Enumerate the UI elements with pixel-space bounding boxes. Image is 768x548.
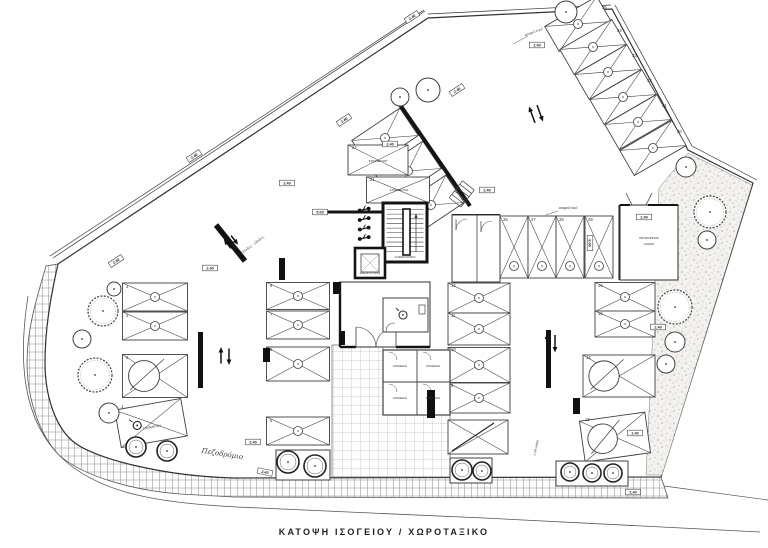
plain-tree xyxy=(99,403,119,423)
entrance-lobby xyxy=(340,282,430,347)
grate-tree xyxy=(277,451,299,473)
parking-stall xyxy=(448,313,510,345)
grate-tree xyxy=(604,464,622,482)
svg-text:2.40: 2.40 xyxy=(249,441,256,445)
parking-stall xyxy=(267,347,330,381)
svg-text:5.00: 5.00 xyxy=(316,211,323,215)
dimension-tag: 2.40 xyxy=(530,42,545,48)
svg-text:2.40: 2.40 xyxy=(631,432,638,436)
svg-text:2.40: 2.40 xyxy=(654,326,661,330)
parking-stall xyxy=(448,283,510,313)
stall-number: 15 xyxy=(598,311,603,316)
svg-text:2.40: 2.40 xyxy=(283,182,290,186)
svg-text:2.40: 2.40 xyxy=(640,216,647,220)
plan-label: ΑΠΟΘΗΚΗ xyxy=(393,364,407,368)
stall-number: 33 xyxy=(632,53,637,58)
dimension-tag: 2.40 xyxy=(246,439,261,445)
dimension-tag: 2.40 xyxy=(628,430,643,436)
service-rooms xyxy=(452,215,500,282)
stall-number: 31 xyxy=(662,103,667,108)
parking-stall xyxy=(595,311,655,337)
plain-tree xyxy=(657,355,675,373)
plan-label: ΣΤΑΘΜΕΥΣΗ xyxy=(390,188,408,192)
bushy-tree xyxy=(658,290,692,324)
floor-plan-drawing: 3534333231302324252221262728294321876512… xyxy=(0,0,768,548)
bushy-tree xyxy=(78,358,112,392)
dimension-tag: 2.40 xyxy=(404,11,420,24)
plain-tree xyxy=(107,282,121,296)
plan-label: ΣΤΑΘΜΕΥΣΗ xyxy=(369,159,388,163)
stall-number: 22 xyxy=(352,145,357,150)
svg-text:2.40: 2.40 xyxy=(533,44,540,48)
svg-text:2.40: 2.40 xyxy=(629,491,636,495)
dimension-tag: 2.40 xyxy=(651,324,666,330)
stall-number: 27 xyxy=(531,217,536,222)
svg-text:6.00: 6.00 xyxy=(588,239,592,246)
storage-rooms xyxy=(383,350,450,415)
parking-stall xyxy=(267,283,330,310)
parking-stall xyxy=(267,311,330,339)
dimension-tag: 6.00 xyxy=(587,236,593,251)
stall-number: 13 xyxy=(585,417,590,422)
stall-number: 10 xyxy=(451,347,456,352)
dimension-tag: 2.40 xyxy=(480,187,495,193)
dimension-tag: 2.40 xyxy=(626,489,641,495)
parking-stall xyxy=(583,355,655,397)
plan-label: ΠΡΟΣΩΡΙΝΟΣ xyxy=(639,236,659,240)
plain-tree xyxy=(676,157,696,177)
parking-stall xyxy=(448,348,510,383)
grate-tree xyxy=(561,463,579,481)
svg-text:2.40: 2.40 xyxy=(483,189,490,193)
stall-number: 16 xyxy=(598,283,603,288)
parking-stall xyxy=(500,216,528,278)
plan-label: ΑΝΕΛΚΥΣΤΗΡΑΣ xyxy=(360,271,381,275)
stall-number: 11 xyxy=(451,313,456,318)
plan-label: ΑΠΟΘΗΚΗ xyxy=(426,364,440,368)
parking-stall xyxy=(448,383,510,413)
grate-tree xyxy=(452,460,472,480)
parking-stall xyxy=(123,355,188,398)
stall-number: 35 xyxy=(602,5,607,10)
stair-newel xyxy=(403,209,410,255)
dimension-tag: 5.00 xyxy=(313,209,328,215)
parking-stall xyxy=(448,420,508,454)
dimension-tag: 2.40 xyxy=(637,214,652,220)
grate-tree xyxy=(583,464,601,482)
parking-stall xyxy=(267,417,330,445)
plan-label: ασφαλτικό xyxy=(559,206,578,210)
svg-text:2.40: 2.40 xyxy=(206,267,213,271)
dimension-tag: 2.40 xyxy=(203,265,218,271)
plain-tree xyxy=(391,88,409,106)
plain-tree xyxy=(73,330,91,348)
drawing-caption: ΚΑΤΟΨΗ ΙΣΟΓΕΙΟΥ / ΧΩΡΟΤΑΞΙΚΟ xyxy=(279,527,489,537)
plain-tree xyxy=(416,78,440,102)
dimension-tag: 2.40 xyxy=(280,180,295,186)
stall-number: 14 xyxy=(586,355,591,360)
stall-number: 32 xyxy=(647,78,652,83)
stall-number: 26 xyxy=(503,217,508,222)
bushy-tree xyxy=(88,296,118,326)
parking-stall xyxy=(123,283,188,311)
grate-tree xyxy=(473,462,491,480)
svg-text:2.40: 2.40 xyxy=(386,143,393,147)
grate-tree xyxy=(304,455,326,477)
stall-number: 12 xyxy=(451,283,456,288)
stall-number: 28 xyxy=(559,217,564,222)
plan-label: ΑΠΟΘΗΚΗ xyxy=(393,396,407,400)
bushy-tree xyxy=(694,196,726,228)
plain-tree xyxy=(555,1,577,23)
dimension-tag: 2.40 xyxy=(383,141,398,147)
stall-number: 29 xyxy=(588,217,593,222)
parking-stall xyxy=(579,412,650,462)
stall-number: 30 xyxy=(677,129,682,134)
stall-number: 21 xyxy=(370,177,375,182)
plain-tree xyxy=(665,332,685,352)
parking-stall xyxy=(595,283,655,312)
plain-tree xyxy=(698,231,716,249)
plan-label: ΚΑΔΟΣ xyxy=(644,242,654,246)
plan-label: ΑΠΟΘΗΚΗ xyxy=(426,396,440,400)
floor-plan-sheet: 3534333231302324252221262728294321876512… xyxy=(0,0,768,548)
wc-room xyxy=(383,298,428,332)
grate-tree xyxy=(157,441,177,461)
grate-tree xyxy=(126,437,146,457)
parking-stall xyxy=(123,312,188,340)
plan-label: ΚΛΙΜΑΚΟΣΤΑΣΙΟ xyxy=(395,255,416,259)
stall-number: 34 xyxy=(617,28,622,33)
parking-stall xyxy=(528,216,556,278)
parking-stall xyxy=(556,216,584,278)
